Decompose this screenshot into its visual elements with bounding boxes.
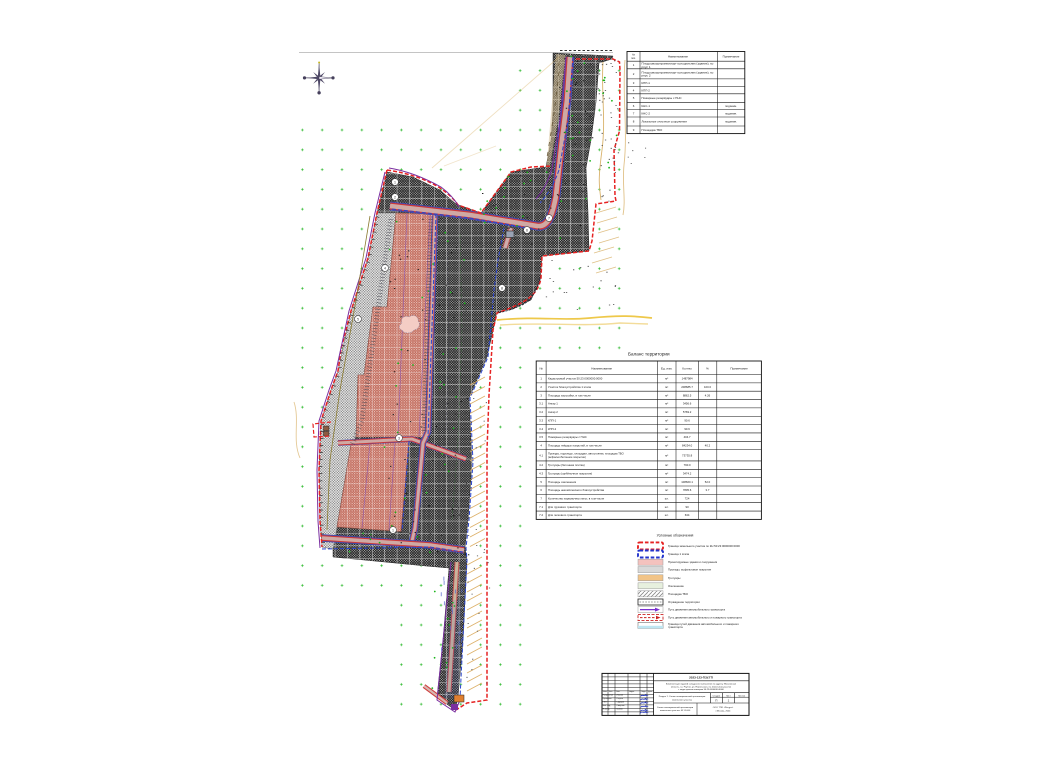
svg-text:Изм.: Изм. [603,691,608,693]
svg-text:Петров: Петров [617,698,623,700]
svg-text:КПП-2: КПП-2 [642,88,651,92]
svg-text:Ангар 1: Ангар 1 [548,402,558,406]
svg-text:2023-123-ПЗУ.ГП: 2023-123-ПЗУ.ГП [689,675,713,679]
svg-text:область, г.о. Реутов, ул. Нико: область, г.о. Реутов, ул. Никольская, на… [671,686,732,688]
svg-text:84234.0: 84234.0 [682,444,693,448]
svg-text:Н.контр.: Н.контр. [603,709,611,711]
svg-text:3.3: 3.3 [539,418,543,422]
svg-text:подземн.: подземн. [725,104,737,108]
svg-text:м²: м² [665,463,668,467]
svg-text:Ед. изм.: Ед. изм. [661,367,673,371]
svg-text:Примечание: Примечание [730,367,748,371]
svg-text:Путь движения автомобильного т: Путь движения автомобильного транспорта [668,608,725,612]
svg-text:м²: м² [665,393,668,397]
svg-text:(асфальтобетонное покрытие): (асфальтобетонное покрытие) [548,455,586,459]
svg-text:м²: м² [665,402,668,406]
svg-text:рпус 2: рпус 2 [642,74,651,78]
svg-text:7.1: 7.1 [539,505,543,509]
svg-text:Лист: Лист [616,691,620,693]
svg-text:Проектируемые здания и сооруже: Проектируемые здания и сооружения [668,560,718,564]
svg-text:подземн.: подземн. [725,111,737,115]
svg-text:40.2: 40.2 [705,444,711,448]
svg-text:подземн.: подземн. [725,120,737,124]
svg-text:Плодоовощехранилище-холодильни: Плодоовощехранилище-холодильник (здание)… [642,70,714,74]
svg-text:7805.6: 7805.6 [683,488,692,492]
svg-text:г.Москва, 2024: г.Москва, 2024 [716,710,731,712]
svg-text:КНС-1: КНС-1 [642,104,651,108]
svg-text:3.5: 3.5 [539,435,543,439]
svg-text:м²: м² [665,427,668,431]
svg-text:Для легкового транспорта: Для легкового транспорта [548,513,582,517]
svg-text:2: 2 [394,195,396,199]
svg-text:90.6: 90.6 [684,418,690,422]
svg-text:КПП-1: КПП-1 [548,418,557,422]
svg-text:108660.1: 108660.1 [681,480,693,484]
svg-text:м²: м² [665,385,668,389]
svg-text:Тротуары: Тротуары [668,576,680,580]
svg-text:4.3: 4.3 [539,472,543,476]
svg-text:Тротуары (бетонная плитка): Тротуары (бетонная плитка) [548,463,585,467]
svg-text:Баланс территории: Баланс территории [628,352,670,357]
svg-text:Тротуары (щебёночное покрытие): Тротуары (щебёночное покрытие) [548,472,592,476]
svg-text:4.26: 4.26 [705,393,711,397]
svg-text:Плодоовощехранилище-холодильни: Плодоовощехранилище-холодильник (здание)… [642,62,714,66]
svg-text:м²: м² [665,377,668,381]
svg-text:м²: м² [665,410,668,414]
svg-text:Наименование: Наименование [591,367,612,371]
svg-text:100.0: 100.0 [704,385,711,389]
svg-text:Раздел 1. Схема планировочной: Раздел 1. Схема планировочной организаци… [659,695,706,698]
svg-text:Для грузового транспорта: Для грузового транспорта [548,505,582,509]
svg-text:м²: м² [665,472,668,476]
svg-text:634: 634 [685,513,690,517]
svg-text:Стадия: Стадия [713,695,721,697]
svg-text:Нач. отд.: Нач. отд. [603,705,611,707]
svg-text:208685.7: 208685.7 [681,385,693,389]
svg-text:7.2: 7.2 [539,513,543,517]
svg-text:Участок благоустройства 1 этап: Участок благоустройства 1 этапа [548,385,591,389]
svg-text:м²: м² [665,444,668,448]
svg-text:КПП-2: КПП-2 [548,427,557,431]
svg-text:1: 1 [392,528,394,532]
svg-text:5769.2: 5769.2 [683,410,692,414]
svg-text:транспорта: транспорта [668,625,683,629]
svg-text:4.1: 4.1 [539,453,543,457]
svg-text:%: % [706,367,709,371]
svg-text:Подп.: Подп. [641,691,646,693]
svg-text:Площадка ТБО: Площадка ТБО [642,128,663,132]
svg-text:ГИП: ГИП [603,702,607,704]
svg-text:724: 724 [685,497,690,501]
svg-text:Комплектация зданий складского: Комплектация зданий складского назначени… [666,683,737,686]
svg-text:Листов: Листов [738,695,746,697]
svg-text:Проезды, асфальтовое покрытие: Проезды, асфальтовое покрытие [668,568,712,572]
svg-text:73735.8: 73735.8 [682,453,693,457]
svg-text:с кадастровым номером 50:23:00: с кадастровым номером 50:23:0000000:0000 [678,689,724,691]
svg-text:Разработал: Разработал [603,695,613,697]
svg-text:3.2: 3.2 [539,410,543,414]
svg-text:6: 6 [526,228,528,232]
svg-text:Иванов: Иванов [617,695,624,697]
svg-text:Наименование: Наименование [668,55,688,59]
svg-text:земельного участка: земельного участка [672,699,693,701]
svg-text:Примечание: Примечание [723,55,740,59]
svg-text:м²: м² [665,480,668,484]
svg-text:Количество парковочных мест, в: Количество парковочных мест, в том числе [548,497,605,501]
svg-text:Козлов: Козлов [617,709,623,711]
svg-text:Лист: Лист [726,695,731,697]
svg-text:Проверил: Проверил [603,698,612,700]
svg-text:Граница 1 этапа: Граница 1 этапа [668,552,690,556]
svg-text:м²: м² [665,488,668,492]
svg-text:7: 7 [548,216,550,220]
svg-text:Площадь некомплексного благоус: Площадь некомплексного благоустройства [548,488,605,492]
svg-text:Площадь твёрдых покрытий, в то: Площадь твёрдых покрытий, в том числе [548,444,602,448]
svg-text:Площадь застройки, в том числе: Площадь застройки, в том числе [548,393,591,397]
svg-text:м²: м² [665,435,668,439]
svg-text:4: 4 [384,266,386,270]
svg-text:Путь движения автомобильного и: Путь движения автомобильного и пожарного… [668,616,742,620]
svg-text:м²: м² [665,453,668,457]
svg-text:Кадастровый участок 50:23:0000: Кадастровый участок 50:23:0000000:0000 [548,377,603,381]
svg-text:Кол-во: Кол-во [682,367,692,371]
svg-text:3474.2: 3474.2 [683,472,692,476]
svg-text:8: 8 [501,286,503,290]
svg-text:П: П [715,698,717,702]
svg-text:КНС-2: КНС-2 [642,111,651,115]
svg-text:Пожарные резервуары с ПНС: Пожарные резервуары с ПНС [548,435,587,439]
svg-text:шт.: шт. [665,505,669,509]
svg-text:Смирнов: Смирнов [617,705,625,707]
svg-text:Пожарные резервуары с ПНС: Пожарные резервуары с ПНС [642,96,682,100]
svg-text:3: 3 [398,436,400,440]
svg-text:5: 5 [357,317,359,321]
svg-text:Проезды, подъезды, площадки, а: Проезды, подъезды, площадки, автостоянки… [548,452,624,456]
svg-text:Условные обозначения: Условные обозначения [657,534,694,538]
svg-text:52.0: 52.0 [705,480,711,484]
svg-text:1487984: 1487984 [682,377,693,381]
svg-text:Схема планировочной организаци: Схема планировочной организации [657,706,694,709]
svg-text:поз.: поз. [631,57,636,60]
svg-text:3.4: 3.4 [539,427,543,431]
svg-text:3.7: 3.7 [706,488,710,492]
svg-text:м²: м² [665,418,668,422]
svg-text:Ангар 2: Ангар 2 [548,410,558,414]
svg-text:Граница земельного участка по: Граница земельного участка по КН 50:23:0… [668,544,740,548]
svg-text:3456.6: 3456.6 [683,402,692,406]
svg-text:90: 90 [686,505,690,509]
svg-text:404.7: 404.7 [684,435,691,439]
svg-text:КПП-1: КПП-1 [642,81,651,85]
svg-text:Ограждение территории: Ограждение территории [668,600,700,604]
svg-text:90.6: 90.6 [684,427,690,431]
svg-text:Озеленение: Озеленение [668,584,684,588]
svg-text:шт.: шт. [665,497,669,501]
svg-text:земельного участка. М 1:1000: земельного участка. М 1:1000 [660,710,691,712]
svg-text:ООО ТПО «Ресурс»: ООО ТПО «Ресурс» [713,707,734,709]
svg-text:8862.5: 8862.5 [683,393,692,397]
svg-text:Площадь озеленения: Площадь озеленения [548,480,577,484]
svg-text:№док.: №док. [629,690,635,693]
svg-text:рпус 1: рпус 1 [642,65,651,69]
svg-text:Кол.: Кол. [609,691,613,693]
svg-text:шт.: шт. [665,513,669,517]
svg-text:790.0: 790.0 [684,463,691,467]
svg-text:Локальные очистные сооружения: Локальные очистные сооружения [642,120,688,124]
svg-text:1: 1 [394,180,396,184]
svg-text:3.1: 3.1 [539,402,543,406]
svg-text:4.2: 4.2 [539,463,543,467]
svg-text:Сидоров: Сидоров [617,702,625,704]
svg-text:Площадка ТБО: Площадка ТБО [668,592,689,596]
